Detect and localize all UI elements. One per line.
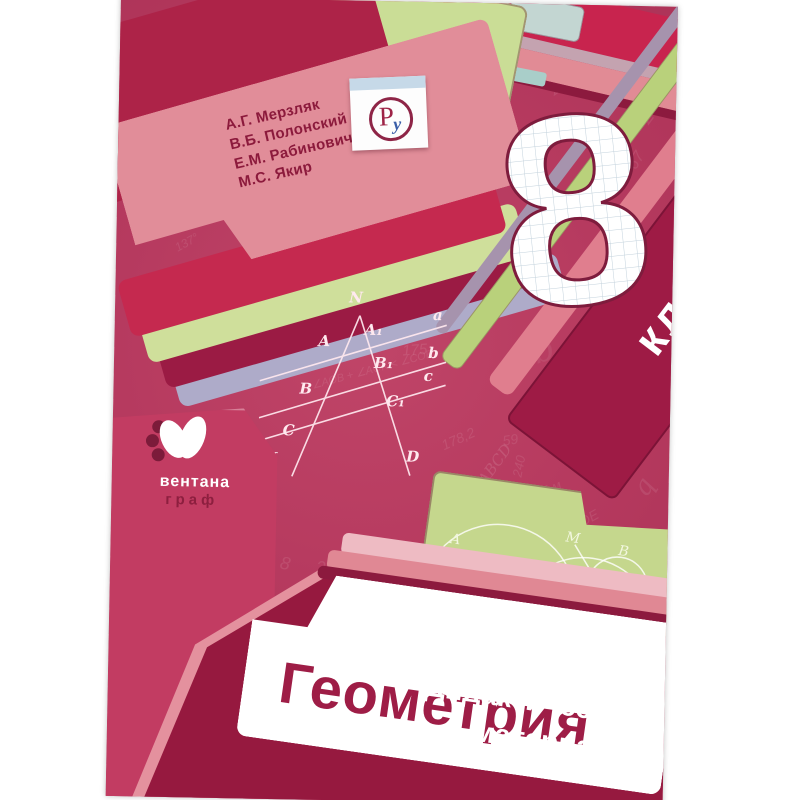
fig-label-B: B: [299, 380, 312, 398]
publisher-name-line2: граф: [165, 491, 218, 509]
publisher-name-line1: вентана: [160, 473, 231, 492]
ventana-graf-butterfly-icon: [140, 410, 221, 474]
book-cover: ∠AOK = 125°∠COE6737573,7231mАВ·ВС175∠AOB…: [106, 0, 678, 800]
sketch-label-M: M: [565, 529, 581, 547]
fig-label-C: C: [283, 421, 295, 439]
logo-tab-blue-strip: [349, 76, 425, 91]
book-cover-photo: ∠AOK = 125°∠COE6737573,7231mАВ·ВС175∠AOB…: [0, 0, 800, 800]
fig-label-A: A: [318, 332, 330, 350]
fig-label-A₁: A₁: [364, 321, 383, 339]
publisher-logo-tab: Р у: [349, 76, 428, 151]
fig-label-N: N: [349, 288, 363, 306]
publisher-block: вентана граф: [139, 410, 271, 522]
fig-label-B₁: B₁: [374, 354, 394, 372]
logo-letter-u: у: [393, 114, 402, 135]
fig-label-a: a: [433, 306, 443, 324]
authors-list: А.Г. МерзлякВ.Б. ПолонскийЕ.М. Рабинович…: [223, 89, 359, 193]
fig-label-C₁: C₁: [386, 392, 405, 410]
fig-label-D: D: [406, 448, 419, 466]
fig-label-c: c: [424, 367, 433, 385]
fig-label-b: b: [428, 344, 439, 362]
